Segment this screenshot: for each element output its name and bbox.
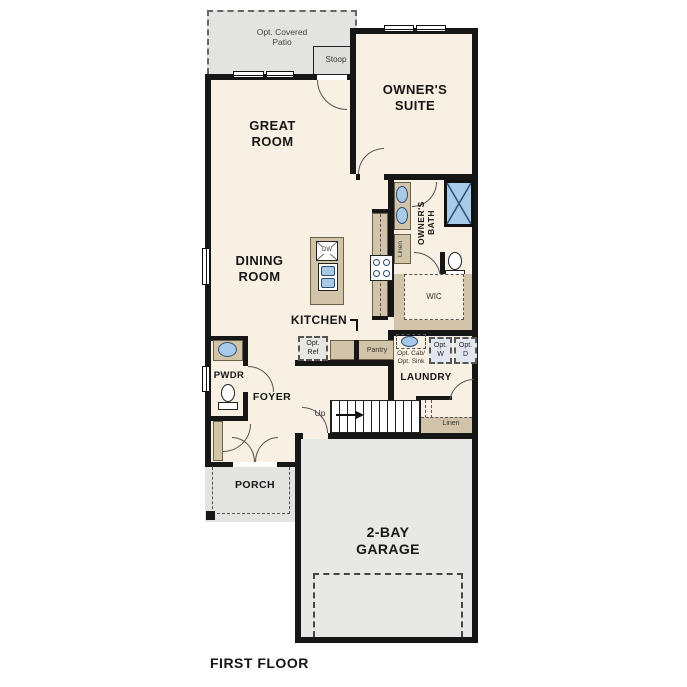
hall-linen-label: Linen	[433, 420, 469, 428]
great-room-label: GREAT ROOM	[230, 118, 315, 149]
wall	[295, 433, 301, 643]
opt-w-label: Opt. W	[434, 342, 447, 358]
porch-column	[206, 511, 215, 520]
staircase	[330, 400, 420, 433]
opt-cab-sink-label: Opt. Cab/ Opt. Sink	[392, 350, 430, 366]
wic-label: WIC	[404, 292, 464, 302]
window	[202, 366, 210, 392]
porch-label: PORCH	[230, 479, 280, 492]
up-label: Up	[310, 408, 330, 418]
optional-refrigerator: Opt. Ref	[298, 336, 328, 361]
foyer-label: FOYER	[250, 391, 294, 404]
sink	[401, 336, 418, 347]
toilet	[448, 252, 462, 270]
laundry-label: LAUNDRY	[398, 372, 454, 384]
window	[233, 71, 264, 78]
window	[266, 71, 294, 78]
wall	[350, 28, 478, 34]
kitchen-label: KITCHEN	[288, 313, 350, 327]
shower	[444, 180, 474, 227]
wall	[243, 336, 248, 366]
floor-plan: Opt. Covered Patio Stoop 2-BAY GARAGE PO…	[0, 0, 687, 687]
first-floor-title: FIRST FLOOR	[210, 655, 320, 672]
wall	[350, 34, 356, 174]
wall	[372, 209, 388, 213]
window	[202, 248, 210, 285]
toilet-tank	[218, 402, 238, 410]
pantry-label: Pantry	[360, 347, 394, 355]
owners-suite-label: OWNER'S SUITE	[370, 82, 460, 113]
wall	[354, 340, 359, 360]
wall	[328, 433, 478, 439]
kitchen-leader-line	[356, 319, 358, 331]
pwdr-label: PWDR	[212, 370, 246, 381]
sink	[396, 186, 408, 203]
stove	[370, 255, 393, 281]
toilet	[221, 384, 235, 402]
bath-linen-label: Linen	[397, 236, 405, 262]
wall	[295, 637, 478, 643]
optional-washer: Opt. W	[429, 337, 452, 364]
window	[416, 25, 446, 32]
up-arrow	[336, 414, 356, 416]
coat-closet	[213, 421, 223, 461]
window	[384, 25, 414, 32]
hall-linen-closet: Linen	[421, 400, 472, 433]
island-sink	[318, 263, 338, 291]
dw-label: DW	[320, 247, 334, 254]
wall	[205, 462, 233, 467]
wall	[372, 316, 388, 320]
owners-bath-label: OWNER'S BATH	[416, 188, 436, 258]
opt-d-label: Opt. D	[459, 342, 472, 358]
optional-dryer: Opt. D	[454, 337, 477, 364]
sink	[396, 207, 408, 224]
dishwasher: DW	[316, 241, 338, 261]
opt-ref-label: Opt. Ref	[306, 340, 319, 356]
wall	[474, 396, 478, 402]
patio-label: Opt. Covered Patio	[222, 27, 342, 47]
up-arrow-head	[356, 411, 364, 419]
garage-door-dashed	[313, 573, 463, 637]
garage-label: 2-BAY GARAGE	[318, 524, 458, 558]
sink	[218, 342, 237, 357]
wall	[356, 174, 360, 180]
dining-room-label: DINING ROOM	[217, 253, 302, 284]
